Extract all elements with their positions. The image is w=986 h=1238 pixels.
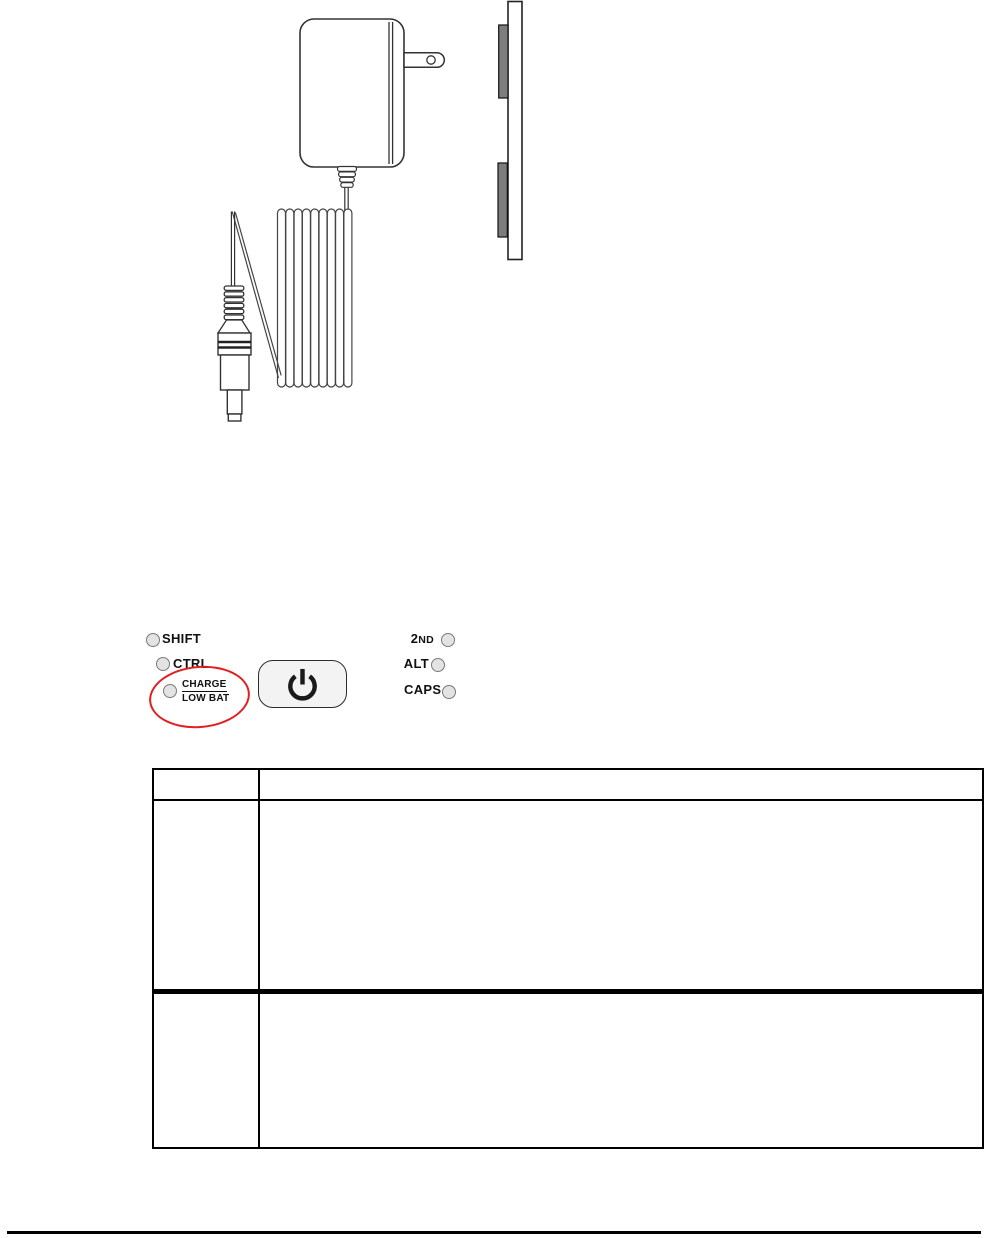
ctrl-led [156, 657, 170, 671]
footer-rule [7, 1231, 981, 1234]
table-cell [154, 801, 260, 989]
caps-led [442, 685, 456, 699]
plug-prong-bottom [498, 163, 507, 237]
coiled-power-cord [232, 209, 352, 387]
second-label-suffix: ND [418, 634, 434, 646]
table-row [154, 801, 982, 994]
table-header-cell [154, 770, 260, 799]
table-cell [260, 994, 982, 1147]
table-header-cell [260, 770, 982, 799]
ac-power-adapter-side-profile [498, 2, 522, 260]
lowbat-label: LOW BAT [182, 693, 229, 704]
second-led [441, 633, 455, 647]
table-cell [154, 994, 260, 1147]
ctrl-label: CTRL [173, 657, 209, 671]
caps-label: CAPS [404, 683, 439, 697]
power-button [258, 660, 347, 708]
ac-power-adapter-front [300, 19, 444, 211]
alt-led [431, 658, 445, 672]
table-row [154, 994, 982, 1147]
power-icon [284, 666, 321, 703]
charge-lowbat-label: CHARGE LOW BAT [182, 679, 229, 704]
charge-label: CHARGE [182, 679, 227, 692]
table-header-row [154, 770, 982, 801]
table-cell [260, 801, 982, 989]
alt-label: ALT [397, 657, 429, 671]
shift-led [146, 633, 160, 647]
spec-table [152, 768, 984, 1149]
second-label: 2ND [402, 632, 434, 647]
barrel-plug-connector [218, 212, 251, 422]
plug-prong-top [499, 25, 508, 98]
ac-adapter-figure [0, 0, 560, 430]
shift-label: SHIFT [162, 632, 201, 646]
manual-page: SHIFT CTRL CHARGE LOW BAT 2ND ALT CAPS [0, 0, 986, 1238]
charge-lowbat-led [163, 684, 177, 698]
